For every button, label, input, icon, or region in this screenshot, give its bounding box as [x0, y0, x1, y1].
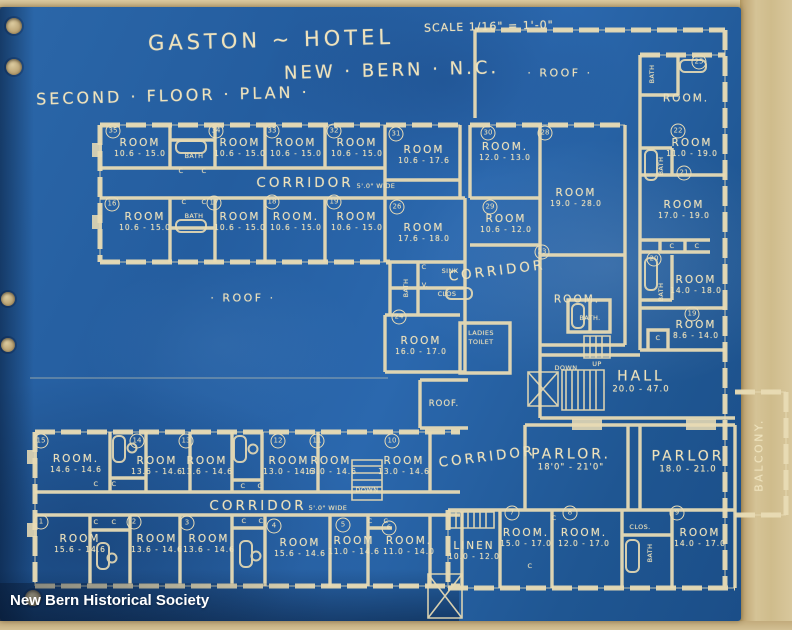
room-label: ROOM10.6 - 15.0 — [214, 138, 266, 158]
room-label: ROOM13.6 - 14.6 — [131, 534, 183, 554]
plan-text: C — [528, 562, 533, 570]
plan-text: C — [695, 242, 700, 250]
plan-text: C — [552, 514, 557, 522]
room-label: ROOM10.6 - 15.0 — [331, 212, 383, 232]
room-label: ROOM13.0 - 14.6 — [378, 456, 430, 476]
room-label: ROOM10.6 - 17.6 — [398, 145, 450, 165]
plan-text: TOILET — [468, 338, 493, 346]
plan-text: UP — [592, 360, 601, 368]
room-number: 5 — [336, 518, 351, 533]
room-label: ROOM11.0 - 14.6 — [328, 536, 380, 556]
room-label: ROOM10.6 - 15.0 — [214, 212, 266, 232]
room-number: 32 — [327, 124, 342, 139]
room-number: 21 — [677, 166, 692, 181]
plan-text: DOWN — [355, 486, 378, 494]
plan-text: C — [94, 480, 99, 488]
watermark-text: New Bern Historical Society — [10, 592, 209, 609]
plan-text: · ROOF · — [210, 292, 275, 305]
room-label: ROOM14.0 - 18.0 — [670, 275, 722, 295]
room-label: ROOM10.6 - 12.0 — [480, 214, 532, 234]
room-label: ROOM11.0 - 19.0 — [666, 138, 718, 158]
plan-text: BATH — [402, 279, 410, 298]
plan-text: C — [202, 198, 207, 206]
plan-text: BATH. — [579, 314, 600, 322]
room-label: ROOM13.6 - 14.6 — [183, 534, 235, 554]
room-label: ROOM. — [663, 93, 709, 104]
room-number: 16 — [105, 197, 120, 212]
room-number: 1 — [34, 515, 49, 530]
room-label: ROOM19.0 - 28.0 — [550, 188, 602, 208]
room-number: 19 — [327, 195, 342, 210]
plan-text: C — [670, 242, 675, 250]
punch-hole — [6, 59, 22, 75]
room-number: 29 — [483, 200, 498, 215]
room-label: ROOM15.6 - 14.6 — [274, 538, 326, 558]
room-label: ROOM10.6 - 15.0 — [331, 138, 383, 158]
room-label: ROOM.14.6 - 14.6 — [50, 454, 102, 474]
plan-text: BATH — [648, 65, 656, 84]
room-number: 24 — [392, 310, 407, 325]
room-number: 31 — [389, 127, 404, 142]
inner-walls — [35, 30, 735, 588]
room-label: PARLOR18.0 - 21.0 — [652, 450, 725, 475]
plan-text: BATH — [185, 212, 204, 220]
plan-text: BATH — [646, 544, 654, 563]
room-number: 34 — [209, 124, 224, 139]
room-number: 25 — [692, 55, 707, 70]
room-number: 18 — [265, 195, 280, 210]
room-number: 9 — [670, 506, 685, 521]
room-label: PARLOR.18'0" - 21'0" — [531, 448, 611, 473]
plan-text: CORRIDOR — [209, 498, 306, 514]
room-label: ROOM.10.6 - 15.0 — [270, 212, 322, 232]
plan-text: V. — [422, 281, 428, 289]
room-label: ROOM17.0 - 19.0 — [658, 200, 710, 220]
plan-text: C — [259, 517, 264, 525]
room-label: ROOM.12.0 - 17.0 — [558, 528, 610, 548]
room-label: ROOM.12.0 - 13.0 — [479, 142, 531, 162]
punch-hole — [1, 338, 15, 352]
plan-text: BALCONY. — [753, 418, 766, 492]
room-number: 14 — [130, 434, 145, 449]
room-number: 17 — [207, 196, 222, 211]
plan-text: LADIES — [468, 329, 494, 337]
room-label: LINEN10.0 - 12.0 — [448, 541, 500, 561]
room-label: ROOM13.6 - 14.6 — [131, 456, 183, 476]
plan-text: CORRIDOR — [256, 175, 353, 191]
plan-text: C — [384, 517, 389, 525]
plan-text: · ROOF · — [527, 67, 592, 80]
room-label: ROOM13.0 - 14.6 — [305, 456, 357, 476]
room-label: ROOM14.0 - 17.0 — [674, 528, 726, 548]
room-number: 30 — [481, 126, 496, 141]
room-label: ROOM.11.0 - 14.0 — [383, 536, 435, 556]
plan-text: BATH — [185, 152, 204, 160]
room-number: 7 — [505, 506, 520, 521]
plan-text: C — [258, 482, 263, 490]
room-number: 10 — [385, 434, 400, 449]
room-number: 2 — [127, 515, 142, 530]
room-number: 13 — [179, 434, 194, 449]
plan-text: BATH — [657, 283, 665, 302]
room-label: ROOM10.6 - 15.0 — [119, 212, 171, 232]
room-number: 20 — [647, 252, 662, 267]
plan-text: SINK — [442, 267, 459, 275]
room-label: ROOM. — [554, 294, 600, 305]
room-number: 15 — [34, 434, 49, 449]
room-label: ROOM13.6 - 14.6 — [181, 456, 233, 476]
room-number: 33 — [265, 124, 280, 139]
punch-hole — [1, 292, 15, 306]
stairs — [352, 336, 610, 618]
plan-text: DOWN — [554, 364, 577, 372]
room-number: 3 — [180, 516, 195, 531]
plan-text: C — [112, 480, 117, 488]
room-number: 19 — [685, 307, 700, 322]
room-label: ROOM.15.0 - 17.0 — [500, 528, 552, 548]
punch-hole — [6, 18, 22, 34]
plan-text: C — [182, 198, 187, 206]
plan-text: C — [422, 263, 427, 271]
plan-text: C — [242, 517, 247, 525]
room-number: 12 — [271, 434, 286, 449]
room-number: 28 — [538, 126, 553, 141]
plan-text: CLOS. — [629, 523, 650, 531]
plan-text: 5'.0" WIDE — [309, 504, 348, 512]
plan-text: BATH — [657, 157, 665, 176]
plan-text: C — [656, 334, 661, 342]
room-label: ROOM10.6 - 15.0 — [270, 138, 322, 158]
room-number: 35 — [106, 124, 121, 139]
room-number: 4 — [267, 519, 282, 534]
room-label: ROOM10.6 - 15.0 — [114, 138, 166, 158]
plan-text: C — [94, 518, 99, 526]
room-number: 26 — [390, 200, 405, 215]
room-label: ROOM16.0 - 17.0 — [395, 336, 447, 356]
blueprint-scan: GASTON ~ HOTEL NEW · BERN · N.C. SECOND … — [0, 0, 792, 630]
plan-text: C — [368, 517, 373, 525]
room-label: ROOM17.6 - 18.0 — [398, 223, 450, 243]
plan-text: C — [112, 518, 117, 526]
plan-text: CLOS — [438, 290, 457, 298]
room-number: 22 — [671, 124, 686, 139]
plan-text: C — [179, 167, 184, 175]
room-number: 11 — [310, 434, 325, 449]
plan-text: C — [241, 482, 246, 490]
room-label: ROOM8.6 - 14.0 — [673, 320, 719, 340]
plan-text: 5'.0" WIDE — [357, 182, 396, 190]
plan-text: ROOF. — [429, 399, 460, 409]
room-label: ROOM15.6 - 14.6 — [54, 534, 106, 554]
plan-text: C — [202, 167, 207, 175]
room-number: 8 — [563, 506, 578, 521]
room-label: HALL20.0 - 47.0 — [612, 370, 669, 395]
